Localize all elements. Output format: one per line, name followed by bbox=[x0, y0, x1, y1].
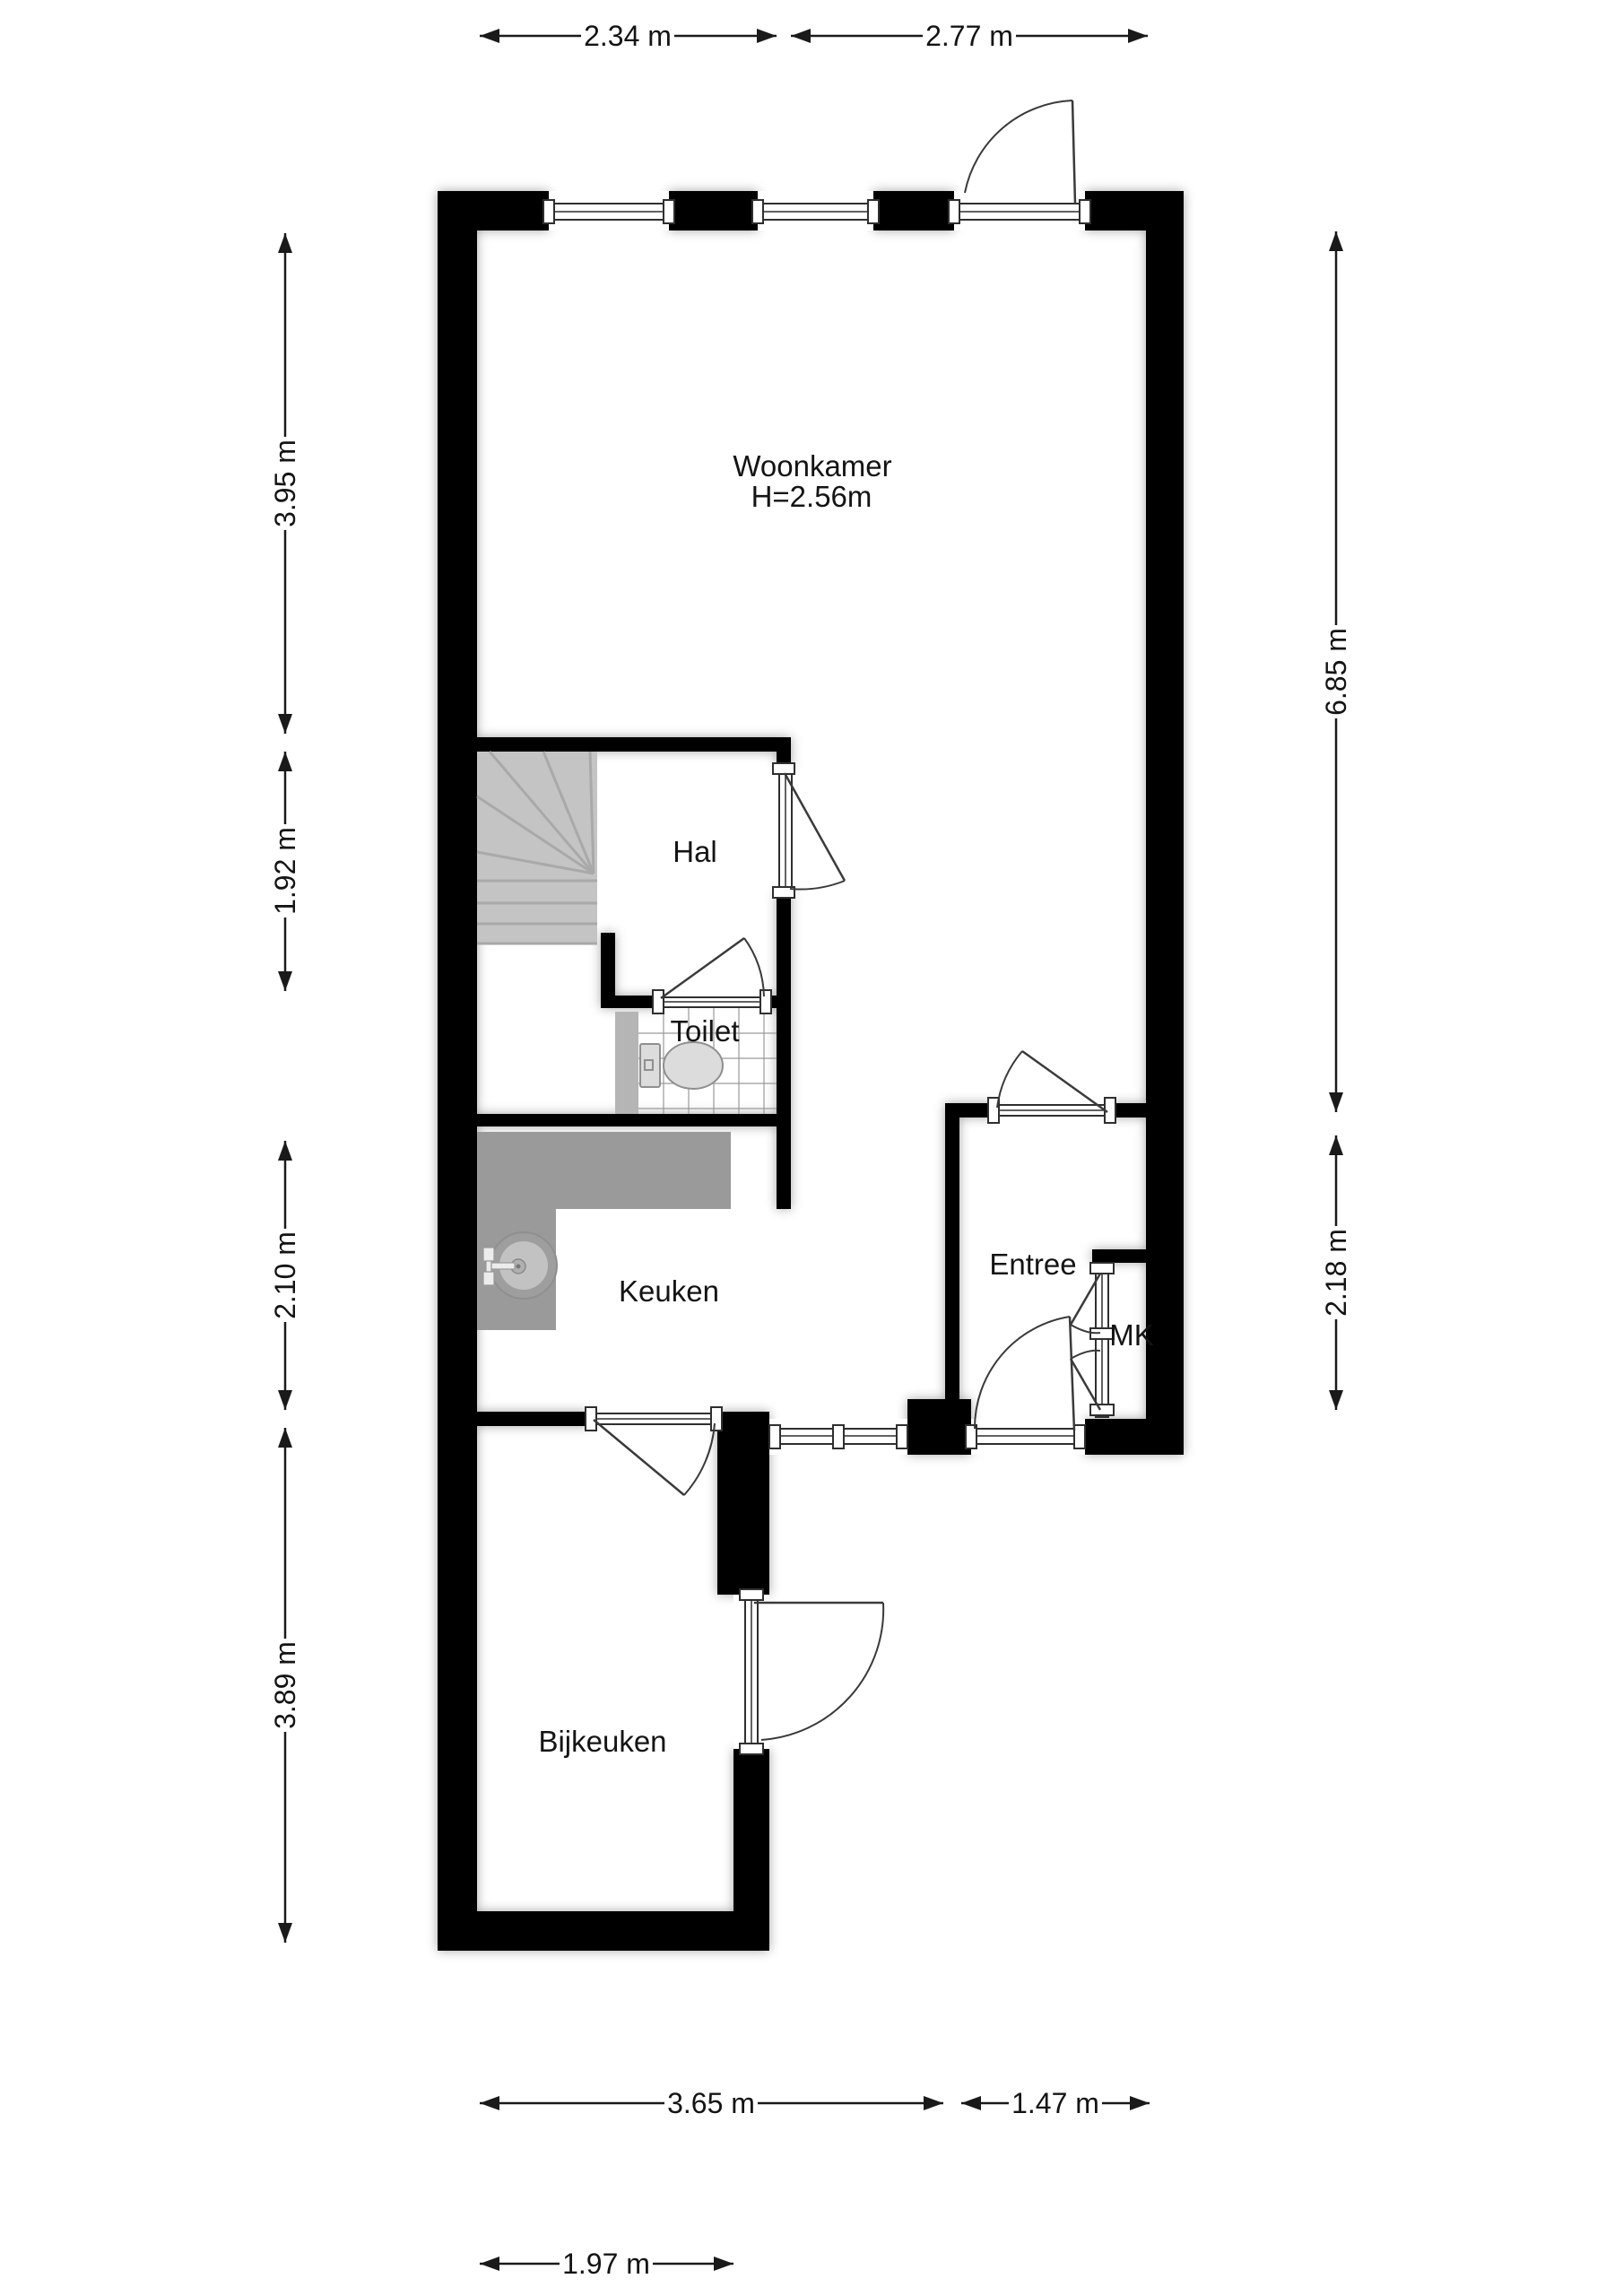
dim-left-1: 3.95 m bbox=[269, 439, 301, 527]
room-label-woonkamer: Woonkamer bbox=[733, 449, 891, 483]
staircase bbox=[477, 752, 597, 944]
window-keuken-south bbox=[769, 1419, 907, 1455]
wall-bijkeuken-bottom bbox=[438, 1911, 769, 1951]
wall-stair-stub bbox=[601, 933, 615, 1008]
stairs-area bbox=[477, 752, 597, 944]
doors bbox=[586, 100, 1115, 1754]
dimensions: 2.34 m 2.77 m 3.95 m 1.92 m 2.10 m 3.89 … bbox=[269, 20, 1352, 2280]
dim-right-1: 6.85 m bbox=[1320, 628, 1352, 716]
toilet-bowl bbox=[664, 1042, 723, 1089]
room-label-hal: Hal bbox=[673, 835, 717, 868]
floor-plan: Woonkamer H=2.56m Hal Toilet Keuken Entr… bbox=[0, 0, 1623, 2296]
window-woonkamer-1 bbox=[543, 191, 674, 230]
door-mk-double bbox=[1071, 1263, 1114, 1417]
door-front-entrance bbox=[966, 1317, 1085, 1455]
wall-front-door-block bbox=[907, 1399, 971, 1455]
door-hal-woonkamer bbox=[773, 763, 845, 898]
room-label-mk: MK bbox=[1109, 1318, 1154, 1352]
wall-top-seg1 bbox=[438, 191, 549, 230]
room-label-toilet: Toilet bbox=[670, 1014, 739, 1048]
door-entree-woonkamer bbox=[988, 1051, 1115, 1123]
dim-right-2: 2.18 m bbox=[1320, 1229, 1352, 1317]
toilet-flush-button bbox=[645, 1060, 653, 1070]
dim-left-4: 3.89 m bbox=[269, 1641, 301, 1729]
dim-bottom-2: 1.47 m bbox=[1011, 2087, 1099, 2119]
door-bijkeuken-exterior bbox=[733, 1589, 883, 1754]
floorplan-page: Woonkamer H=2.56m Hal Toilet Keuken Entr… bbox=[0, 0, 1623, 2296]
dim-bottom-1: 3.65 m bbox=[667, 2087, 755, 2119]
dim-left-3: 2.10 m bbox=[269, 1231, 301, 1319]
wall-mk-top bbox=[1092, 1249, 1148, 1263]
wall-left bbox=[438, 191, 477, 1951]
room-label-keuken: Keuken bbox=[619, 1274, 719, 1308]
wall-south-right bbox=[1085, 1419, 1184, 1455]
dim-top-2: 2.77 m bbox=[925, 20, 1013, 52]
wall-toilet-top-left bbox=[615, 996, 658, 1008]
toilet-fixture bbox=[640, 1042, 723, 1089]
wall-top-seg2 bbox=[669, 191, 758, 230]
wall-right bbox=[1146, 191, 1184, 1455]
room-label-woonkamer-height: H=2.56m bbox=[751, 480, 872, 513]
door-keuken-bijkeuken bbox=[586, 1407, 722, 1495]
wall-bijkeuken-right-pillar bbox=[717, 1412, 769, 1595]
wall-bijkeuken-top-left bbox=[477, 1412, 591, 1426]
window-woonkamer-2 bbox=[752, 191, 879, 230]
door-toilet bbox=[653, 938, 771, 1013]
dim-left-2: 1.92 m bbox=[269, 827, 301, 915]
toilet-partition bbox=[615, 1012, 638, 1114]
wall-keuken-top bbox=[477, 1114, 777, 1126]
room-label-bijkeuken: Bijkeuken bbox=[538, 1725, 666, 1758]
wall-entree-left bbox=[945, 1103, 959, 1419]
wall-hal-top bbox=[477, 737, 791, 752]
windows bbox=[543, 191, 907, 1455]
dimension-label-backgrounds bbox=[269, 20, 1352, 2280]
dim-top-1: 2.34 m bbox=[584, 20, 672, 52]
room-label-entree: Entree bbox=[989, 1248, 1076, 1281]
wall-top-seg3 bbox=[873, 191, 954, 230]
dim-bottom-3: 1.97 m bbox=[562, 2248, 650, 2280]
wall-hal-right-lower bbox=[777, 891, 791, 1209]
door-woonkamer-exterior bbox=[949, 100, 1090, 230]
